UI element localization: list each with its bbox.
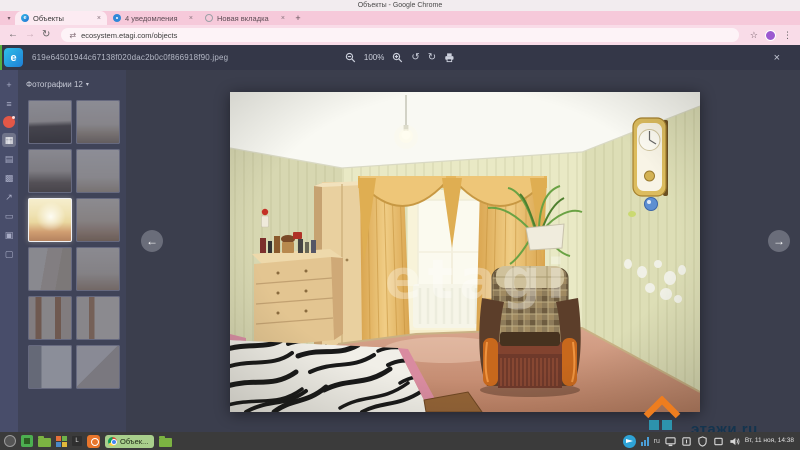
volume-icon[interactable] bbox=[729, 436, 740, 447]
shield-icon[interactable] bbox=[697, 436, 708, 447]
photo-thumbnail-4[interactable] bbox=[76, 149, 120, 193]
tab-search-button[interactable]: ▾ bbox=[3, 11, 15, 25]
brand-text: этажи.ru bbox=[691, 421, 758, 432]
tab-objects[interactable]: e Объекты × bbox=[15, 11, 107, 25]
window-title: Объекты - Google Chrome bbox=[358, 2, 443, 9]
keyboard-layout-indicator[interactable]: ru bbox=[654, 438, 660, 445]
rail-docs-item[interactable]: ▢ bbox=[2, 247, 16, 261]
window-accent-edge bbox=[0, 45, 2, 70]
orange-app-icon[interactable] bbox=[87, 435, 100, 448]
etagi-logo: e bbox=[4, 48, 23, 67]
notification-icon[interactable] bbox=[681, 436, 692, 447]
rail-add-button[interactable]: + bbox=[2, 78, 16, 92]
rotate-left-icon[interactable]: ↺ bbox=[411, 53, 419, 63]
window-titlebar: Объекты - Google Chrome bbox=[0, 0, 800, 11]
telegram-icon[interactable] bbox=[623, 435, 636, 448]
rail-avatar[interactable] bbox=[3, 116, 15, 128]
zoom-in-icon[interactable] bbox=[392, 52, 403, 63]
rail-chat-item[interactable]: ▭ bbox=[2, 209, 16, 223]
app-rail: +≡▦▤▩↗▭▣▢ bbox=[0, 70, 18, 432]
taskbar: L Объек... ru bbox=[0, 432, 800, 450]
rail-share-item[interactable]: ↗ bbox=[2, 190, 16, 204]
etagi-house-icon bbox=[643, 396, 685, 432]
chevron-down-icon: ▾ bbox=[86, 81, 89, 88]
photo-thumbnail-9[interactable] bbox=[28, 296, 72, 340]
photo-thumbnail-10[interactable] bbox=[76, 296, 120, 340]
image-viewer-bar: e 619e64501944c67138f020dac2b0c0f866918f… bbox=[0, 45, 800, 70]
browser-toolbar: ← → ↻ ⇄ ecosystem.etagi.com/objects ☆ ⋮ bbox=[0, 25, 800, 45]
folder-window-icon[interactable] bbox=[159, 438, 172, 447]
back-button[interactable]: ← bbox=[8, 30, 18, 40]
etagi-favicon: e bbox=[21, 14, 29, 22]
photo-thumbnail-12[interactable] bbox=[76, 345, 120, 389]
photo-thumbnail-7[interactable] bbox=[28, 247, 72, 291]
photo-thumbnail-8[interactable] bbox=[76, 247, 120, 291]
site-info-icon[interactable]: ⇄ bbox=[69, 31, 76, 40]
window-icon[interactable] bbox=[713, 436, 724, 447]
address-bar[interactable]: ⇄ ecosystem.etagi.com/objects bbox=[61, 28, 739, 42]
listing-photo: etagi bbox=[230, 92, 700, 412]
close-tab-icon[interactable]: × bbox=[97, 15, 101, 22]
tab-notifications[interactable]: 4 уведомления × bbox=[107, 11, 199, 25]
thumbnail-grid bbox=[28, 100, 120, 389]
url-text: ecosystem.etagi.com/objects bbox=[81, 31, 177, 40]
network-icon[interactable] bbox=[665, 436, 676, 447]
default-favicon bbox=[205, 14, 213, 22]
rail-calendar-item[interactable]: ▤ bbox=[2, 152, 16, 166]
next-photo-button[interactable]: → bbox=[768, 230, 790, 252]
close-tab-icon[interactable]: × bbox=[281, 15, 285, 22]
photo-thumbnail-2[interactable] bbox=[76, 100, 120, 144]
photo-thumbnail-11[interactable] bbox=[28, 345, 72, 389]
etagi-brand-watermark: этажи.ru bbox=[643, 396, 758, 432]
print-icon[interactable] bbox=[444, 52, 455, 63]
rotate-right-icon[interactable]: ↻ bbox=[428, 53, 436, 63]
close-tab-icon[interactable]: × bbox=[189, 15, 193, 22]
viewer-controls: 100% ↺ ↻ bbox=[345, 45, 455, 70]
zoom-level: 100% bbox=[364, 53, 384, 62]
previous-photo-button[interactable]: ← bbox=[141, 230, 163, 252]
forward-button[interactable]: → bbox=[25, 30, 35, 40]
tab-new[interactable]: Новая вкладка × bbox=[199, 11, 291, 25]
signal-bars-icon[interactable] bbox=[641, 437, 649, 446]
app-grid-icon[interactable] bbox=[56, 436, 67, 447]
rail-menu-button[interactable]: ≡ bbox=[2, 97, 16, 111]
photo-thumbnail-3[interactable] bbox=[28, 149, 72, 193]
new-tab-button[interactable]: + bbox=[291, 11, 305, 25]
terminal-icon[interactable] bbox=[21, 435, 33, 447]
rail-apps-item[interactable]: ▩ bbox=[2, 171, 16, 185]
tab-label: Новая вкладка bbox=[217, 14, 277, 23]
taskbar-clock[interactable]: Вт, 11 ноя, 14:38 bbox=[745, 438, 794, 445]
photos-dropdown[interactable]: Фотографии 12 ▾ bbox=[26, 80, 89, 89]
app-menu-icon[interactable] bbox=[4, 435, 16, 447]
window-button-label: Объек... bbox=[120, 437, 148, 446]
browser-menu-icon[interactable]: ⋮ bbox=[783, 30, 792, 41]
rail-cards-item[interactable]: ▣ bbox=[2, 228, 16, 242]
close-viewer-icon[interactable]: × bbox=[774, 45, 780, 70]
file-manager-icon[interactable] bbox=[38, 438, 51, 447]
tab-label: Объекты bbox=[33, 14, 93, 23]
photos-count-label: Фотографии 12 bbox=[26, 80, 83, 89]
shortcut-icon[interactable]: L bbox=[72, 436, 82, 446]
rail-objects-item[interactable]: ▦ bbox=[2, 133, 16, 147]
tab-strip: ▾ e Объекты × 4 уведомления × Новая вкла… bbox=[0, 11, 800, 25]
taskbar-window-button[interactable]: Объек... bbox=[105, 435, 154, 448]
photo-thumbnail-6[interactable] bbox=[76, 198, 120, 242]
photos-panel: Фотографии 12 ▾ bbox=[18, 70, 126, 432]
photo-thumbnail-5[interactable] bbox=[28, 198, 72, 242]
image-filename: 619e64501944c67138f020dac2b0c0f866918f90… bbox=[32, 53, 228, 62]
page-content: e 619e64501944c67138f020dac2b0c0f866918f… bbox=[0, 45, 800, 432]
viewer-stage: etagi ← → этажи.ru bbox=[126, 70, 800, 432]
bookmark-star-icon[interactable]: ☆ bbox=[750, 30, 758, 41]
notifications-favicon bbox=[113, 14, 121, 22]
tab-label: 4 уведомления bbox=[125, 14, 185, 23]
zoom-out-icon[interactable] bbox=[345, 52, 356, 63]
system-tray: ru bbox=[623, 435, 796, 448]
photo-thumbnail-1[interactable] bbox=[28, 100, 72, 144]
chrome-icon bbox=[108, 437, 117, 446]
profile-avatar[interactable] bbox=[765, 30, 776, 41]
reload-button[interactable]: ↻ bbox=[42, 30, 50, 40]
desktop: Объекты - Google Chrome ▾ e Объекты × 4 … bbox=[0, 0, 800, 450]
